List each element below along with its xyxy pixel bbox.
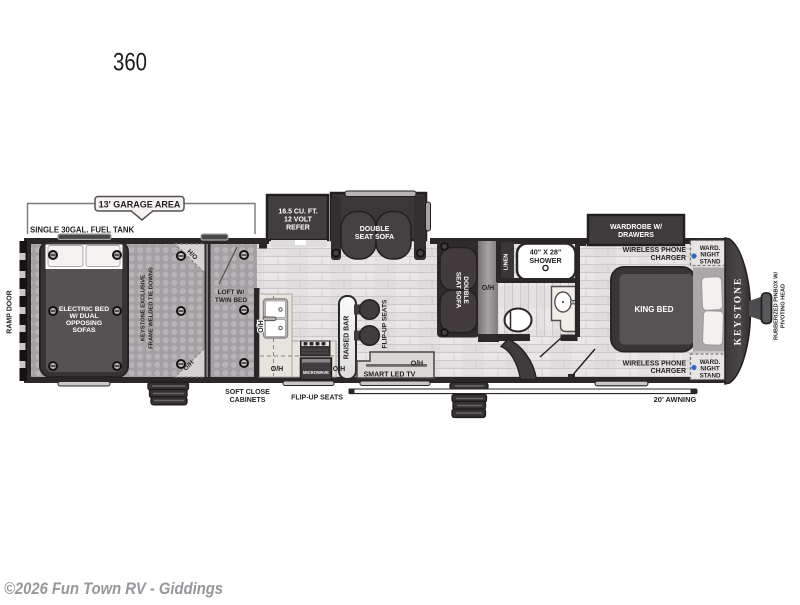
svg-text:16.5 CU. FT.: 16.5 CU. FT. [278, 209, 317, 216]
svg-text:ELECTRIC BED: ELECTRIC BED [59, 306, 109, 313]
svg-text:SOFT CLOSE: SOFT CLOSE [225, 389, 270, 396]
svg-text:DRAWERS: DRAWERS [618, 232, 654, 239]
svg-text:REFER: REFER [286, 225, 310, 232]
svg-text:SEAT SOFA: SEAT SOFA [455, 272, 462, 309]
svg-text:360: 360 [113, 49, 147, 77]
svg-text:SOFAS: SOFAS [72, 327, 96, 334]
svg-text:20' AWNING: 20' AWNING [654, 395, 697, 404]
svg-text:WARDROBE W/: WARDROBE W/ [610, 224, 662, 231]
svg-text:CHARGER: CHARGER [651, 255, 686, 262]
svg-text:KEYSTONE EXCLUSIVE: KEYSTONE EXCLUSIVE [141, 275, 147, 341]
svg-text:CHARGER: CHARGER [651, 368, 686, 375]
svg-text:SMART LED TV: SMART LED TV [364, 372, 416, 379]
svg-text:FLIP-UP SEATS: FLIP-UP SEATS [291, 395, 343, 402]
svg-text:TWIN BED: TWIN BED [215, 297, 247, 304]
svg-text:DOUBLE: DOUBLE [462, 276, 469, 304]
svg-text:LOFT W/: LOFT W/ [218, 289, 245, 296]
svg-text:RAISED BAR: RAISED BAR [344, 316, 351, 360]
svg-text:PIVOTING HEAD: PIVOTING HEAD [781, 284, 787, 328]
svg-text:W/ DUAL: W/ DUAL [69, 313, 98, 320]
svg-text:WIRELESS PHONE: WIRELESS PHONE [623, 361, 687, 368]
svg-text:O/H: O/H [411, 361, 423, 368]
svg-text:CABINETS: CABINETS [230, 397, 266, 404]
svg-text:©2026 Fun Town RV - Giddings: ©2026 Fun Town RV - Giddings [4, 580, 223, 598]
svg-text:FLIP-UP SEATS: FLIP-UP SEATS [382, 299, 389, 348]
svg-text:O/H: O/H [333, 366, 345, 373]
svg-text:SEAT SOFA: SEAT SOFA [355, 234, 394, 241]
svg-text:O/H: O/H [482, 285, 494, 292]
svg-text:RAMP DOOR: RAMP DOOR [7, 290, 14, 333]
svg-text:13' GARAGE AREA: 13' GARAGE AREA [99, 200, 181, 210]
svg-text:SHOWER: SHOWER [529, 256, 562, 265]
svg-text:RUBBERIZED PINBOX W/: RUBBERIZED PINBOX W/ [774, 272, 780, 341]
svg-text:KEYSTONE: KEYSTONE [734, 277, 744, 346]
svg-text:WIRELESS PHONE: WIRELESS PHONE [623, 247, 687, 254]
svg-text:STAND: STAND [700, 258, 721, 265]
svg-text:SINGLE 30GAL. FUEL TANK: SINGLE 30GAL. FUEL TANK [30, 226, 134, 235]
svg-text:12 VOLT: 12 VOLT [284, 217, 313, 224]
svg-text:LINEN: LINEN [504, 254, 510, 271]
svg-text:FRAME WELDED TIE DOWNS: FRAME WELDED TIE DOWNS [149, 267, 155, 349]
svg-text:O/H: O/H [271, 366, 283, 373]
svg-text:MICROWAVE: MICROWAVE [303, 370, 329, 375]
svg-text:KING BED: KING BED [634, 305, 673, 314]
svg-text:OPPOSING: OPPOSING [66, 320, 102, 327]
svg-text:O/H: O/H [258, 320, 265, 332]
svg-text:STAND: STAND [700, 372, 721, 379]
svg-text:DOUBLE: DOUBLE [360, 226, 390, 233]
